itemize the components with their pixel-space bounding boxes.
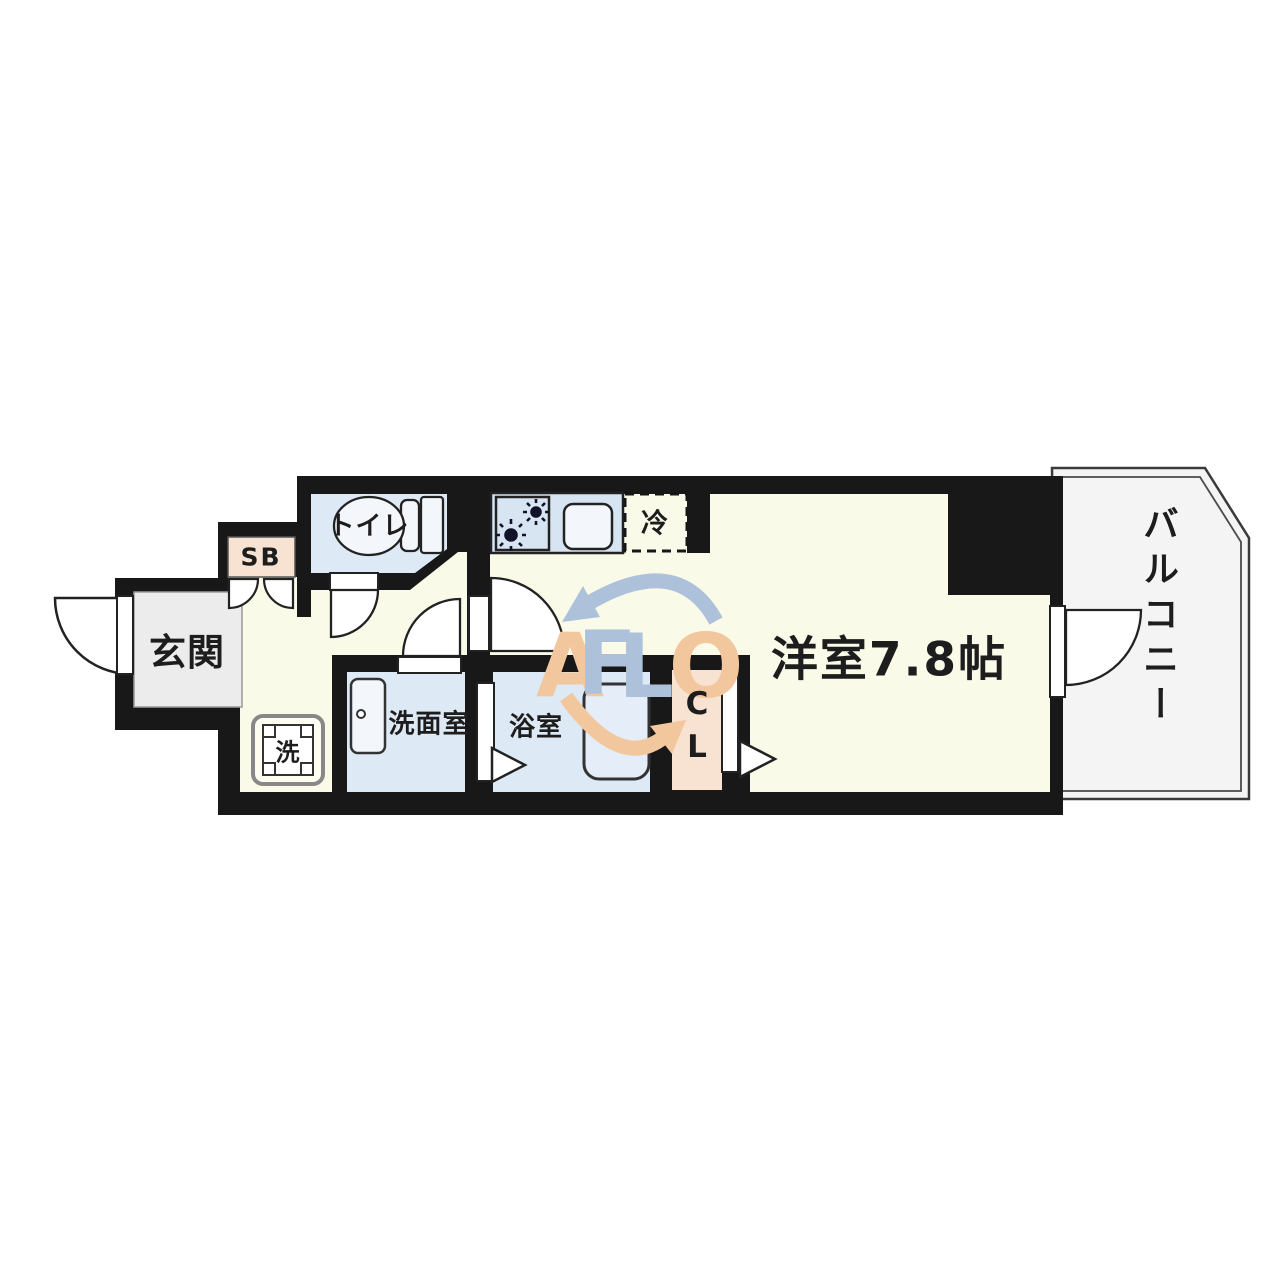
label-fridge: 冷 (641, 502, 669, 541)
kitchen-counter (491, 493, 623, 553)
vanity-knob (357, 710, 365, 718)
floorplan-canvas: A F L O 玄関 SB トイレ 冷 洗 洗面室 浴室 洋室7.8帖 CL バ… (0, 0, 1280, 1280)
entrance-door-leaf (117, 596, 133, 674)
balcony-door-leaf (1050, 606, 1065, 697)
label-western-room: 洋室7.8帖 (771, 621, 1007, 690)
label-shoe-box: SB (240, 543, 281, 572)
kitchen-sink (564, 504, 612, 549)
label-genkan: 玄関 (149, 622, 225, 676)
west-door-leaf (469, 596, 489, 651)
washroom-door-leaf (398, 657, 461, 673)
watermark-letter-l: L (618, 623, 674, 711)
wall-stub-kitchen (687, 493, 710, 553)
label-closet: CL (679, 686, 715, 772)
washroom-vanity (351, 679, 385, 753)
label-bathroom: 浴室 (509, 707, 563, 744)
label-balcony: バルコニー (1131, 505, 1183, 730)
label-washer: 洗 (276, 733, 301, 768)
toilet-door-leaf (330, 573, 378, 590)
label-toilet: トイレ (328, 506, 409, 543)
label-washroom: 洗面室 (388, 704, 469, 741)
wall-stub-toilet (297, 590, 311, 617)
